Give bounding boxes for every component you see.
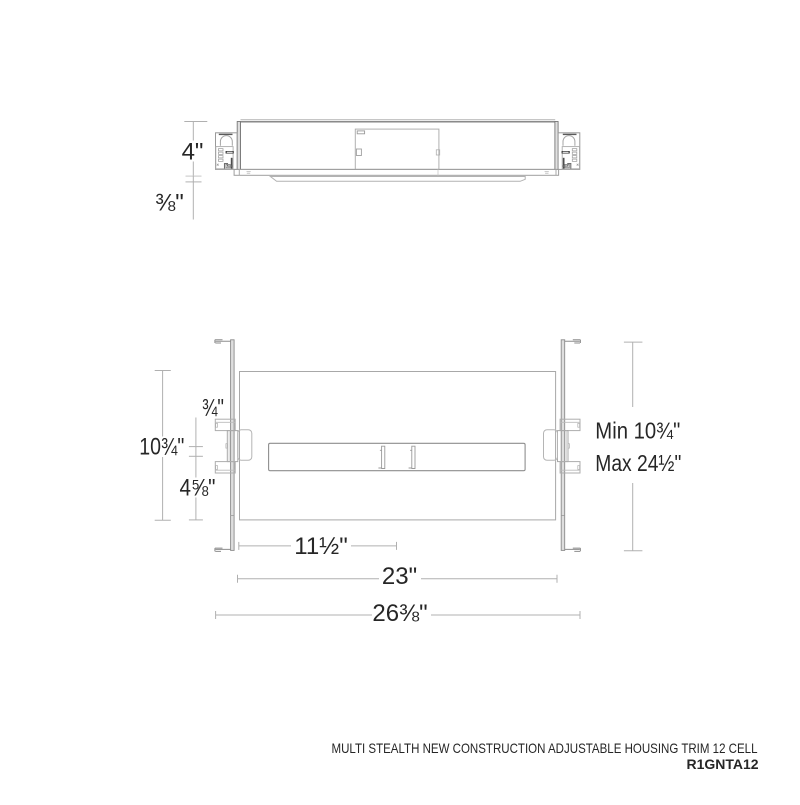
svg-text:26⅜": 26⅜" — [372, 600, 427, 627]
svg-text:10¾": 10¾" — [139, 434, 184, 461]
svg-text:¾": ¾" — [202, 394, 224, 421]
svg-text:R1GNTA12: R1GNTA12 — [687, 756, 759, 772]
svg-text:Min 10¾": Min 10¾" — [595, 418, 680, 444]
svg-text:23": 23" — [382, 563, 417, 590]
svg-text:Max 24½": Max 24½" — [595, 450, 681, 476]
svg-text:MULTI STEALTH NEW CONSTRUCTION: MULTI STEALTH NEW CONSTRUCTION ADJUSTABL… — [332, 740, 758, 756]
svg-text:4": 4" — [182, 139, 204, 166]
svg-text:11½": 11½" — [294, 533, 347, 560]
svg-text:⅜": ⅜" — [155, 189, 184, 216]
svg-text:4⅝": 4⅝" — [180, 475, 216, 502]
